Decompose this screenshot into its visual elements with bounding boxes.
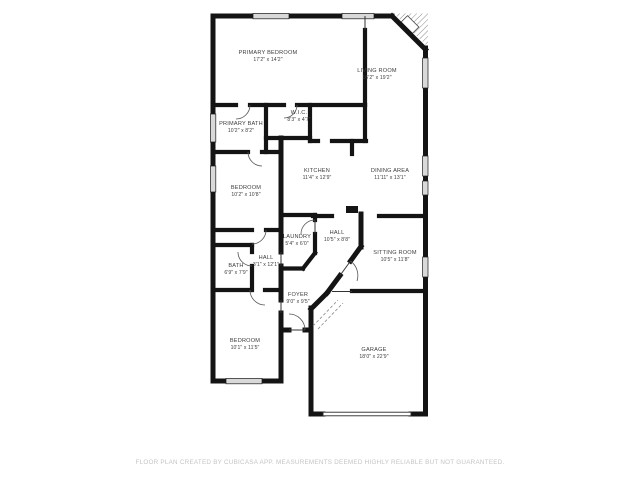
kitchen-island [346,206,358,213]
interior-walls [213,30,426,291]
disclaimer-text: FLOOR PLAN CREATED BY CUBICASA APP. MEAS… [0,459,640,466]
garage-door [323,412,411,416]
door-leaves [281,16,365,330]
floor-plan-page: PRIMARY BEDROOM 17'2" x 14'2" LIVING ROO… [0,0,640,480]
floor-plan-drawing [0,0,640,480]
